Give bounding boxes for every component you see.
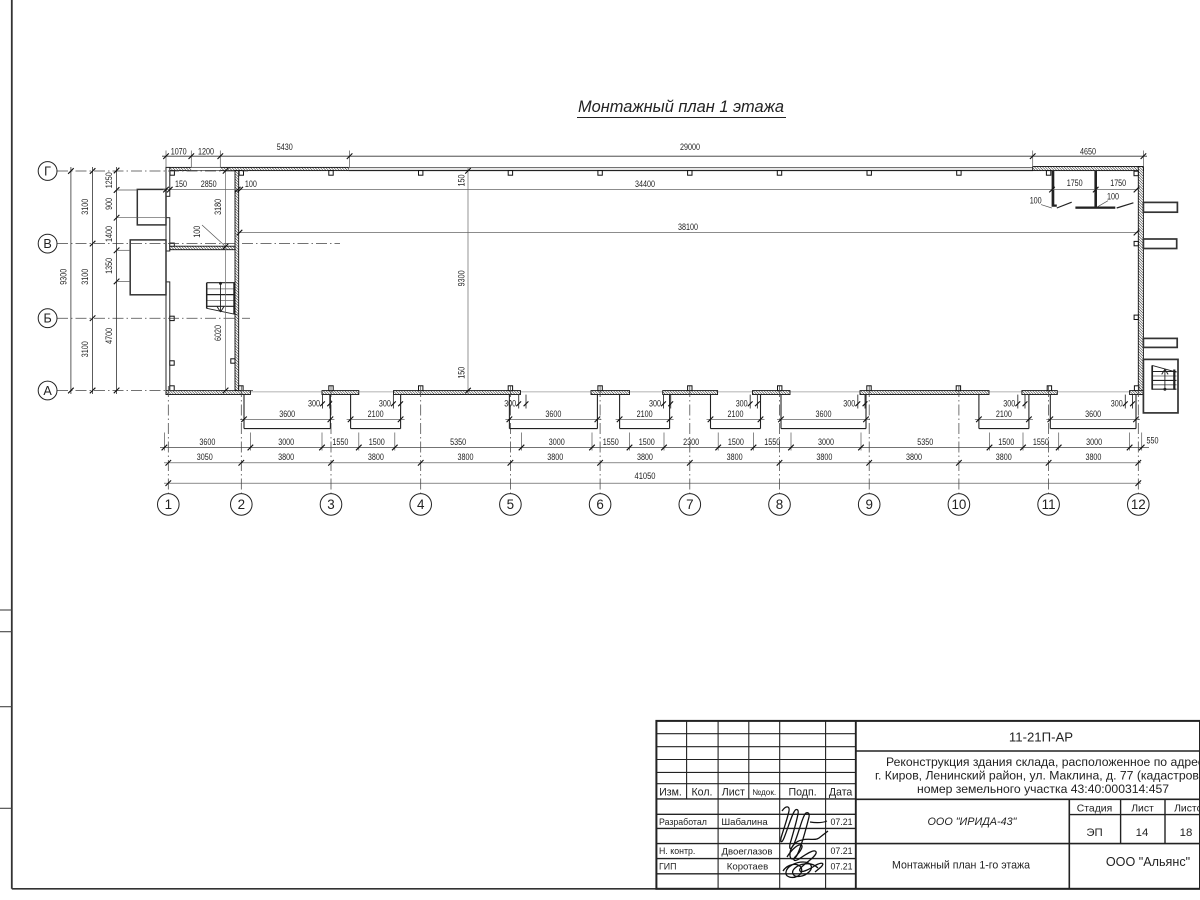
svg-text:8: 8 — [776, 497, 783, 512]
svg-text:14: 14 — [1136, 827, 1149, 839]
svg-text:100: 100 — [192, 226, 202, 238]
svg-text:Монтажный план 1 этажа: Монтажный план 1 этажа — [578, 98, 784, 116]
svg-text:1550: 1550 — [764, 437, 780, 447]
svg-text:Изм.: Изм. — [659, 786, 682, 798]
svg-text:3100: 3100 — [80, 199, 90, 215]
svg-text:ЭП: ЭП — [1086, 827, 1102, 839]
svg-text:№док.: №док. — [752, 788, 776, 797]
svg-text:300: 300 — [379, 398, 391, 408]
svg-text:6020: 6020 — [213, 325, 223, 341]
svg-text:300: 300 — [1003, 398, 1015, 408]
svg-text:4650: 4650 — [1080, 147, 1096, 157]
svg-text:3000: 3000 — [278, 437, 294, 447]
svg-text:1750: 1750 — [1067, 178, 1083, 188]
svg-text:Лист: Лист — [722, 786, 745, 798]
svg-text:38100: 38100 — [678, 222, 698, 232]
svg-text:Б: Б — [43, 312, 51, 326]
svg-text:29000: 29000 — [680, 142, 700, 152]
svg-text:2100: 2100 — [728, 409, 744, 419]
svg-text:3180: 3180 — [213, 199, 223, 215]
svg-text:1400: 1400 — [104, 226, 114, 242]
svg-text:300: 300 — [308, 398, 320, 408]
svg-text:Реконструкция здания склада, р: Реконструкция здания склада, расположенн… — [886, 755, 1200, 769]
svg-text:ООО "ИРИДА-43": ООО "ИРИДА-43" — [928, 816, 1018, 828]
svg-text:3000: 3000 — [549, 437, 565, 447]
svg-text:100: 100 — [1107, 191, 1119, 201]
svg-text:3000: 3000 — [1086, 437, 1102, 447]
svg-text:5430: 5430 — [277, 142, 293, 152]
svg-text:2100: 2100 — [637, 409, 653, 419]
svg-text:300: 300 — [649, 398, 661, 408]
svg-text:Дата: Дата — [829, 786, 853, 798]
svg-text:3600: 3600 — [1085, 409, 1101, 419]
svg-text:г. Киров, Ленинский район, ул.: г. Киров, Ленинский район, ул. Маклина, … — [875, 769, 1200, 783]
svg-text:5350: 5350 — [450, 437, 466, 447]
svg-text:6: 6 — [596, 497, 603, 512]
svg-text:1550: 1550 — [603, 437, 619, 447]
svg-text:2300: 2300 — [683, 437, 699, 447]
svg-text:Листов: Листов — [1174, 803, 1200, 814]
svg-text:3800: 3800 — [637, 452, 653, 462]
svg-text:3800: 3800 — [906, 452, 922, 462]
svg-text:5350: 5350 — [917, 437, 933, 447]
svg-text:1: 1 — [165, 497, 172, 512]
svg-text:100: 100 — [245, 179, 257, 189]
svg-text:1350: 1350 — [104, 258, 114, 274]
svg-text:1070: 1070 — [171, 147, 187, 157]
svg-text:9: 9 — [865, 497, 872, 512]
svg-text:Шабалина: Шабалина — [721, 817, 768, 828]
svg-text:1750: 1750 — [1110, 178, 1126, 188]
svg-text:3800: 3800 — [547, 452, 563, 462]
svg-text:1550: 1550 — [1033, 437, 1049, 447]
svg-text:3600: 3600 — [816, 409, 832, 419]
svg-text:1550: 1550 — [332, 437, 348, 447]
svg-text:1250: 1250 — [104, 172, 114, 188]
svg-text:9300: 9300 — [456, 270, 466, 286]
svg-text:Разработал: Разработал — [659, 817, 707, 827]
svg-text:3800: 3800 — [458, 452, 474, 462]
svg-text:9300: 9300 — [59, 269, 69, 285]
svg-text:3100: 3100 — [80, 341, 90, 357]
svg-text:1500: 1500 — [998, 437, 1014, 447]
svg-text:300: 300 — [843, 398, 855, 408]
svg-text:Монтажный план 1-го этажа: Монтажный план 1-го этажа — [892, 859, 1030, 871]
svg-text:12: 12 — [1131, 497, 1146, 512]
svg-text:3600: 3600 — [545, 409, 561, 419]
svg-text:2100: 2100 — [368, 409, 384, 419]
svg-text:Г: Г — [44, 164, 51, 178]
svg-text:07.21: 07.21 — [831, 817, 853, 827]
svg-text:18: 18 — [1180, 827, 1193, 839]
svg-text:10: 10 — [951, 497, 966, 512]
svg-text:7: 7 — [686, 497, 693, 512]
svg-text:4700: 4700 — [104, 328, 114, 344]
svg-text:150: 150 — [175, 179, 187, 189]
svg-text:150: 150 — [456, 175, 466, 187]
svg-text:Подп.: Подп. — [789, 786, 817, 798]
svg-text:2850: 2850 — [201, 179, 217, 189]
svg-text:3100: 3100 — [80, 269, 90, 285]
svg-text:3: 3 — [327, 497, 334, 512]
svg-text:11: 11 — [1042, 497, 1056, 512]
svg-text:11-21П-АР: 11-21П-АР — [1009, 730, 1073, 745]
svg-text:3050: 3050 — [197, 452, 213, 462]
svg-text:5: 5 — [507, 497, 514, 512]
svg-text:1500: 1500 — [369, 437, 385, 447]
svg-text:3800: 3800 — [816, 452, 832, 462]
svg-text:07.21: 07.21 — [831, 861, 853, 871]
svg-text:ГИП: ГИП — [659, 861, 676, 871]
svg-text:номер земельного участка 43:40: номер земельного участка 43:40:000314:45… — [917, 782, 1169, 796]
svg-text:3000: 3000 — [818, 437, 834, 447]
svg-text:1200: 1200 — [198, 147, 214, 157]
svg-text:550: 550 — [1147, 435, 1159, 445]
svg-text:1500: 1500 — [639, 437, 655, 447]
svg-text:300: 300 — [736, 398, 748, 408]
svg-text:Кол.: Кол. — [692, 786, 713, 798]
svg-text:ООО "Альянс": ООО "Альянс" — [1106, 855, 1190, 869]
svg-text:3800: 3800 — [368, 452, 384, 462]
svg-text:А: А — [43, 384, 52, 398]
svg-text:2: 2 — [238, 497, 245, 512]
svg-text:1500: 1500 — [728, 437, 744, 447]
svg-text:900: 900 — [104, 198, 114, 210]
svg-text:100: 100 — [1030, 195, 1042, 205]
svg-text:2100: 2100 — [996, 409, 1012, 419]
svg-text:4: 4 — [417, 497, 425, 512]
svg-text:34400: 34400 — [635, 179, 655, 189]
svg-text:Стадия: Стадия — [1077, 803, 1112, 814]
svg-text:3800: 3800 — [996, 452, 1012, 462]
svg-text:3600: 3600 — [199, 437, 215, 447]
svg-text:3600: 3600 — [279, 409, 295, 419]
svg-text:41050: 41050 — [635, 471, 656, 481]
svg-text:300: 300 — [504, 398, 516, 408]
svg-text:3800: 3800 — [727, 452, 743, 462]
svg-text:Двоеглазов: Двоеглазов — [722, 847, 773, 858]
svg-text:3800: 3800 — [1085, 452, 1101, 462]
svg-text:300: 300 — [1111, 398, 1123, 408]
svg-text:В: В — [43, 237, 51, 251]
svg-text:Лист: Лист — [1131, 803, 1154, 814]
svg-text:150: 150 — [456, 367, 466, 379]
svg-text:Н. контр.: Н. контр. — [659, 846, 695, 856]
svg-text:07.21: 07.21 — [831, 846, 853, 856]
svg-text:3800: 3800 — [278, 452, 294, 462]
svg-text:Коротаев: Коротаев — [727, 862, 768, 873]
